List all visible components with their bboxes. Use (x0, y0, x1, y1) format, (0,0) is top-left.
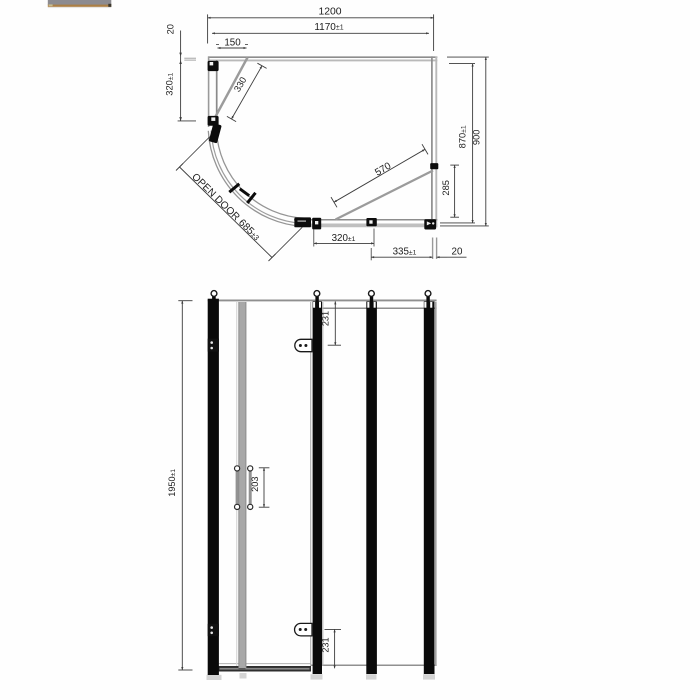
svg-text:335±1: 335±1 (393, 247, 417, 258)
svg-text:20: 20 (452, 247, 463, 258)
svg-text:1170±1: 1170±1 (314, 22, 343, 33)
svg-text:900: 900 (472, 130, 482, 146)
svg-text:203: 203 (250, 477, 260, 492)
svg-text:330: 330 (232, 75, 248, 93)
svg-text:285: 285 (441, 180, 451, 196)
svg-text:150: 150 (224, 37, 241, 48)
svg-text:320±1: 320±1 (165, 72, 175, 95)
svg-text:870±1: 870±1 (458, 125, 468, 148)
svg-text:231: 231 (320, 311, 330, 326)
svg-text:1950±1: 1950±1 (167, 469, 177, 497)
svg-text:1200: 1200 (318, 7, 341, 18)
svg-text:570: 570 (373, 160, 393, 178)
svg-text:231: 231 (321, 637, 331, 652)
svg-text:20: 20 (166, 24, 176, 34)
svg-text:320±1: 320±1 (332, 233, 356, 244)
